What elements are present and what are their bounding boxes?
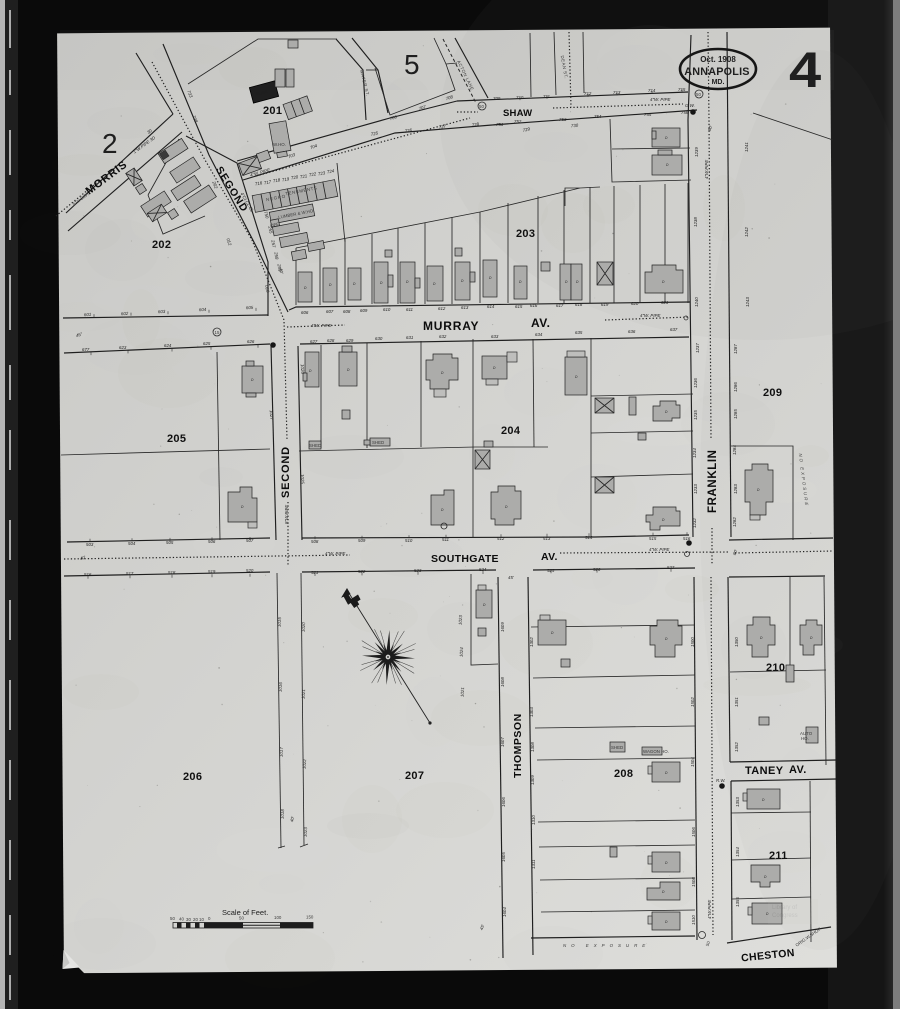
- svg-text:W.HO.: W.HO.: [273, 142, 286, 147]
- svg-text:1302: 1302: [529, 637, 534, 647]
- svg-text:MURRAY: MURRAY: [423, 319, 479, 333]
- svg-text:Congress: Congress: [772, 913, 798, 919]
- svg-text:523: 523: [414, 568, 422, 573]
- svg-text:1024: 1024: [459, 647, 465, 658]
- svg-text:HO.: HO.: [801, 736, 809, 741]
- svg-text:THOMPSON: THOMPSON: [512, 713, 524, 778]
- svg-text:1285: 1285: [733, 409, 738, 419]
- svg-text:MD.: MD.: [712, 79, 725, 86]
- svg-text:209: 209: [763, 387, 782, 399]
- svg-text:1510: 1510: [691, 915, 696, 925]
- svg-text:AV.: AV.: [531, 316, 551, 330]
- svg-text:1504: 1504: [690, 757, 695, 767]
- svg-text:1608: 1608: [500, 677, 505, 687]
- svg-text:506: 506: [208, 539, 216, 544]
- svg-text:WAGON HO.: WAGON HO.: [643, 749, 669, 754]
- svg-text:619: 619: [601, 302, 609, 307]
- svg-text:631: 631: [406, 335, 414, 340]
- svg-text:512: 512: [497, 536, 505, 541]
- svg-text:714: 714: [648, 88, 656, 93]
- svg-text:259: 259: [276, 263, 282, 272]
- svg-text:515: 515: [649, 536, 657, 541]
- svg-text:1350: 1350: [734, 637, 739, 647]
- svg-text:1025: 1025: [300, 474, 306, 485]
- svg-text:1351: 1351: [734, 697, 739, 707]
- svg-text:1233: 1233: [693, 484, 698, 494]
- svg-text:632: 632: [439, 334, 447, 339]
- svg-text:611: 611: [406, 307, 414, 312]
- svg-text:15: 15: [215, 330, 220, 335]
- svg-text:1286: 1286: [733, 382, 738, 392]
- svg-text:1023: 1023: [303, 827, 309, 838]
- svg-text:633: 633: [491, 334, 499, 339]
- svg-text:509: 509: [358, 538, 366, 543]
- svg-text:526: 526: [593, 567, 601, 572]
- svg-text:504: 504: [128, 541, 136, 546]
- svg-text:5: 5: [404, 49, 420, 80]
- svg-text:1016: 1016: [278, 682, 284, 693]
- svg-text:753: 753: [559, 117, 567, 122]
- svg-text:1026: 1026: [300, 364, 306, 375]
- svg-text:605: 605: [246, 305, 254, 310]
- svg-text:202: 202: [152, 239, 171, 251]
- svg-text:50: 50: [479, 104, 484, 109]
- svg-text:615: 615: [515, 304, 523, 309]
- svg-text:1609: 1609: [500, 622, 505, 632]
- svg-text:Scale of Feet.: Scale of Feet.: [222, 908, 268, 917]
- svg-text:713: 713: [613, 90, 621, 95]
- svg-text:20: 20: [193, 917, 198, 922]
- svg-text:1235: 1235: [693, 410, 698, 420]
- svg-text:1283: 1283: [733, 484, 738, 494]
- svg-text:50: 50: [170, 916, 175, 921]
- svg-text:711: 711: [543, 94, 551, 99]
- svg-text:627: 627: [310, 339, 318, 344]
- svg-text:SECOND: SECOND: [280, 446, 292, 498]
- svg-text:1282: 1282: [732, 517, 737, 527]
- svg-text:618: 618: [575, 302, 583, 307]
- svg-text:608: 608: [343, 309, 351, 314]
- svg-text:730: 730: [571, 123, 579, 129]
- svg-text:4"W. PIPE: 4"W. PIPE: [650, 97, 670, 102]
- svg-text:4"W. PIPE: 4"W. PIPE: [649, 547, 669, 552]
- svg-text:613: 613: [461, 305, 469, 310]
- svg-text:1309: 1309: [530, 775, 535, 785]
- svg-text:207: 207: [405, 770, 424, 782]
- svg-text:Library of: Library of: [772, 905, 797, 911]
- svg-text:520: 520: [246, 568, 254, 573]
- svg-text:617: 617: [556, 303, 564, 308]
- svg-text:1605: 1605: [501, 852, 506, 862]
- svg-text:525: 525: [547, 568, 555, 573]
- svg-text:45': 45': [508, 575, 514, 580]
- svg-text:527: 527: [667, 565, 675, 570]
- svg-text:1236: 1236: [693, 378, 698, 388]
- svg-text:ANNAPOLIS: ANNAPOLIS: [684, 66, 749, 78]
- svg-text:505: 505: [166, 540, 174, 545]
- svg-text:1606: 1606: [501, 797, 506, 807]
- svg-text:508: 508: [311, 539, 319, 544]
- svg-text:503: 503: [86, 542, 94, 547]
- svg-text:50: 50: [696, 92, 701, 97]
- svg-text:1506: 1506: [691, 827, 696, 837]
- svg-text:1500: 1500: [690, 637, 695, 647]
- svg-text:1020: 1020: [301, 622, 307, 633]
- svg-text:629: 629: [346, 338, 354, 343]
- svg-text:519: 519: [208, 569, 216, 574]
- svg-text:614: 614: [487, 304, 495, 309]
- svg-text:715: 715: [678, 87, 686, 92]
- svg-text:677: 677: [82, 347, 90, 352]
- svg-text:1284: 1284: [732, 445, 737, 455]
- svg-text:1355: 1355: [735, 897, 740, 907]
- svg-text:521: 521: [311, 570, 319, 575]
- svg-text:712: 712: [584, 91, 592, 96]
- svg-text:516: 516: [84, 572, 92, 577]
- svg-text:623: 623: [119, 345, 127, 350]
- svg-text:210: 210: [766, 662, 785, 674]
- svg-text:710: 710: [516, 95, 524, 100]
- svg-text:1353: 1353: [735, 797, 740, 807]
- svg-text:524: 524: [479, 567, 487, 572]
- svg-text:1237: 1237: [695, 343, 700, 353]
- svg-text:1018: 1018: [280, 809, 286, 820]
- svg-text:SHED: SHED: [372, 440, 384, 445]
- svg-text:AV.: AV.: [789, 764, 807, 776]
- svg-text:G.W.: G.W.: [685, 103, 695, 108]
- svg-text:1239: 1239: [694, 147, 699, 157]
- svg-text:30: 30: [186, 917, 191, 922]
- svg-text:FRANKLIN: FRANKLIN: [707, 449, 719, 513]
- svg-text:AV.: AV.: [541, 551, 558, 563]
- svg-text:208: 208: [614, 768, 633, 780]
- svg-text:R.W.: R.W.: [716, 778, 726, 783]
- svg-text:511: 511: [442, 537, 450, 542]
- svg-text:1310: 1310: [531, 815, 536, 825]
- svg-text:1607: 1607: [500, 737, 505, 747]
- svg-text:634: 634: [535, 332, 543, 337]
- svg-text:4"W.PIPE: 4"W.PIPE: [707, 900, 712, 919]
- svg-text:1015: 1015: [277, 617, 283, 628]
- svg-text:612: 612: [438, 306, 446, 311]
- svg-text:514: 514: [585, 535, 593, 540]
- svg-text:507: 507: [246, 538, 254, 543]
- svg-text:4: 4: [789, 43, 821, 98]
- svg-text:752: 752: [514, 119, 522, 124]
- svg-text:754: 754: [594, 114, 602, 119]
- svg-text:1017: 1017: [279, 747, 285, 758]
- svg-text:624: 624: [164, 343, 172, 348]
- svg-text:4"W. PIPE: 4"W. PIPE: [325, 551, 345, 556]
- svg-text:510: 510: [405, 538, 413, 543]
- svg-text:1238: 1238: [693, 217, 698, 227]
- svg-text:636: 636: [628, 329, 636, 334]
- svg-text:628: 628: [327, 338, 335, 343]
- svg-text:1241: 1241: [744, 142, 749, 152]
- svg-text:1311: 1311: [531, 859, 536, 869]
- svg-text:1352: 1352: [734, 742, 739, 752]
- svg-text:1240: 1240: [694, 297, 699, 307]
- svg-text:4"W.PIPE: 4"W.PIPE: [704, 160, 709, 179]
- svg-text:1243: 1243: [745, 297, 750, 307]
- svg-text:SOUTHGATE: SOUTHGATE: [431, 553, 499, 565]
- svg-text:SHED: SHED: [611, 745, 623, 750]
- svg-text:517: 517: [126, 571, 134, 576]
- svg-text:620: 620: [631, 301, 639, 306]
- svg-text:630: 630: [375, 336, 383, 341]
- svg-text:4"W. PIPE: 4"W. PIPE: [311, 323, 331, 328]
- svg-text:1242: 1242: [744, 227, 749, 237]
- svg-text:1021: 1021: [460, 687, 466, 698]
- svg-text:204: 204: [501, 425, 521, 437]
- svg-text:1023: 1023: [458, 615, 464, 626]
- svg-text:150: 150: [306, 915, 314, 920]
- svg-text:SHAW: SHAW: [503, 108, 532, 119]
- svg-text:Oct. 1908: Oct. 1908: [700, 55, 736, 64]
- svg-text:201: 201: [263, 105, 282, 117]
- svg-text:751: 751: [496, 122, 504, 127]
- svg-text:2: 2: [102, 128, 118, 159]
- svg-text:616: 616: [530, 303, 538, 308]
- svg-text:1354: 1354: [735, 847, 740, 857]
- svg-text:SHED: SHED: [309, 443, 321, 448]
- svg-text:603: 603: [158, 309, 166, 314]
- svg-text:516: 516: [683, 536, 691, 541]
- svg-text:709: 709: [493, 96, 501, 101]
- svg-text:601: 601: [84, 312, 92, 317]
- svg-text:1604: 1604: [502, 907, 507, 917]
- svg-text:1502: 1502: [690, 697, 695, 707]
- svg-text:610: 610: [383, 307, 391, 312]
- svg-text:626: 626: [247, 339, 255, 344]
- svg-text:1308: 1308: [530, 742, 535, 752]
- svg-text:1232: 1232: [692, 518, 697, 528]
- svg-text:756: 756: [681, 110, 689, 115]
- svg-text:1022: 1022: [302, 759, 308, 770]
- svg-text:205: 205: [167, 433, 186, 445]
- svg-text:1021: 1021: [301, 689, 307, 700]
- svg-text:522: 522: [358, 569, 366, 574]
- svg-text:604: 604: [199, 307, 207, 312]
- svg-text:NO EXPOSURE: NO EXPOSURE: [563, 943, 650, 948]
- svg-text:609: 609: [360, 308, 368, 313]
- svg-text:1234: 1234: [692, 448, 697, 458]
- svg-text:50: 50: [239, 916, 244, 921]
- svg-text:637: 637: [670, 327, 678, 332]
- svg-text:203: 203: [516, 228, 535, 240]
- svg-text:1287: 1287: [733, 344, 738, 354]
- svg-text:206: 206: [183, 771, 202, 783]
- svg-text:606: 606: [301, 310, 309, 315]
- svg-text:10: 10: [199, 917, 204, 922]
- svg-text:211: 211: [769, 850, 788, 862]
- svg-text:513: 513: [543, 536, 551, 541]
- svg-text:4"W. PIPE: 4"W. PIPE: [640, 313, 660, 318]
- svg-text:621: 621: [661, 300, 669, 305]
- svg-text:1303: 1303: [529, 707, 534, 717]
- svg-text:1027: 1027: [269, 410, 275, 421]
- svg-text:8"W.PIPE: 8"W.PIPE: [284, 505, 289, 524]
- svg-text:602: 602: [121, 311, 129, 316]
- svg-text:607: 607: [326, 309, 334, 314]
- svg-text:635: 635: [575, 330, 583, 335]
- svg-text:755: 755: [644, 112, 652, 117]
- svg-text:100: 100: [274, 915, 282, 920]
- svg-text:1508: 1508: [691, 877, 696, 887]
- svg-text:518: 518: [168, 570, 176, 575]
- svg-text:TANEY: TANEY: [745, 765, 784, 777]
- svg-text:625: 625: [203, 341, 211, 346]
- svg-text:40: 40: [179, 917, 184, 922]
